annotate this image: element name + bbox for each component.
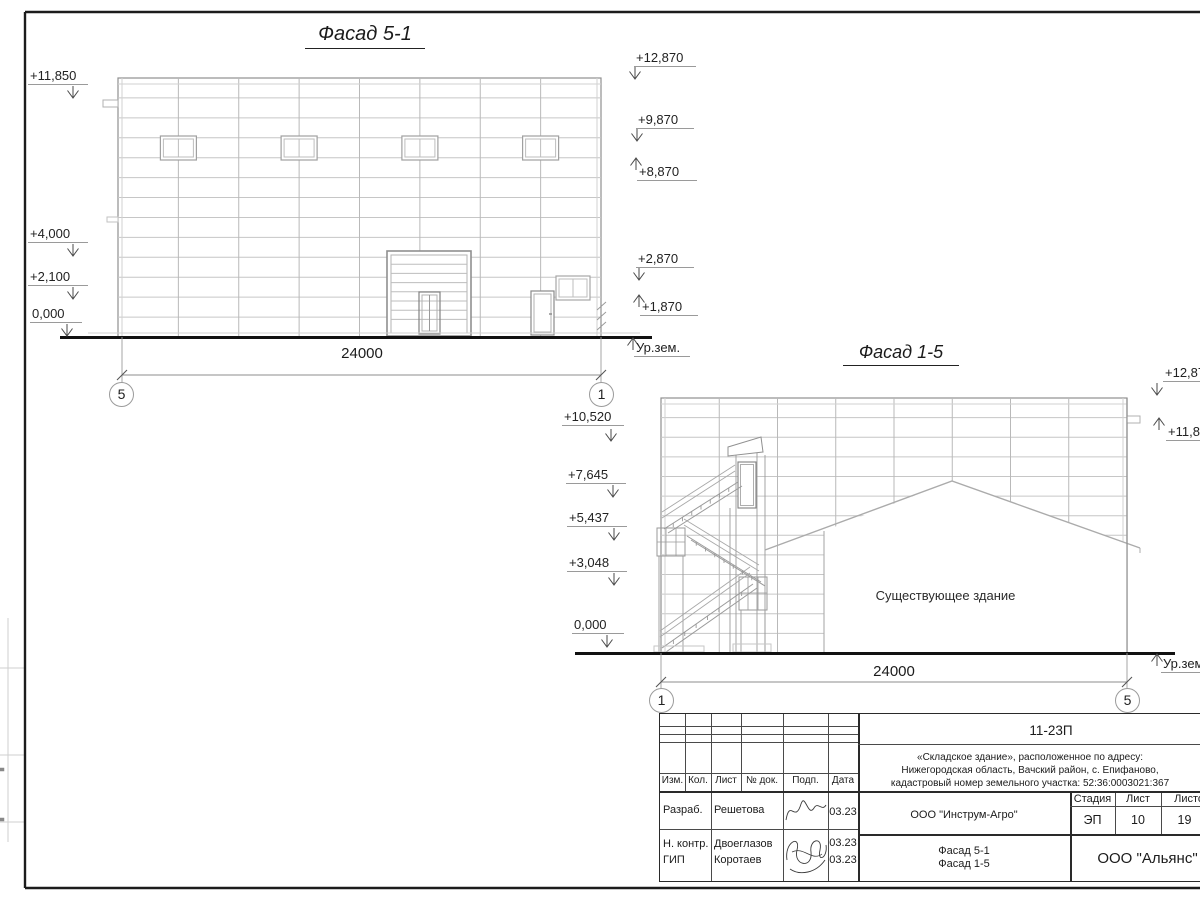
title-block: Изм. Кол. Лист № док. Подп. Дата Разраб.…: [659, 713, 1200, 882]
elevation-label: +4,000: [28, 226, 88, 243]
elevation-arrow-icon: [68, 287, 79, 299]
project-description-line: кадастровый номер земельного участка: 52…: [860, 778, 1200, 789]
ground-level-label: Ур.зем.: [1161, 656, 1200, 673]
elevation-arrow-icon: [1152, 383, 1163, 395]
project-description-line: Нижегородская область, Вачский район, с.…: [860, 765, 1200, 776]
axis-bubble: 1: [589, 382, 614, 407]
elevation-arrow-icon: [630, 67, 641, 79]
doc-code: 11-23П: [858, 723, 1200, 738]
axis-bubble: 1: [649, 688, 674, 713]
dimension-label: 24000: [330, 345, 394, 362]
elevation-arrow-icon: [609, 528, 620, 540]
rev-col-data: Дата: [828, 775, 858, 786]
stage-value: ЭП: [1070, 813, 1115, 827]
elevation-label: +2,870: [636, 251, 694, 268]
elevation-arrow-icon: [1154, 418, 1165, 430]
contractor-company: ООО "Альянс": [1070, 850, 1200, 867]
elevation-label: +1,870: [640, 299, 698, 316]
dimension-label: 24000: [862, 663, 926, 680]
elevation-label: 0,000: [572, 617, 624, 634]
rev-col-kol: Кол.: [685, 775, 711, 786]
signer-date: 03.23: [828, 837, 858, 849]
elevation-label: +2,100: [28, 269, 88, 286]
elevation-arrow-icon: [608, 485, 619, 497]
elevation-label: +5,437: [567, 510, 627, 527]
signer-name: Решетова: [714, 804, 764, 816]
elevation-label: +12,870: [1163, 365, 1200, 382]
facade-5-1-title: Фасад 5-1: [305, 23, 425, 49]
project-description-line: «Складское здание», расположенное по адр…: [860, 752, 1200, 763]
sheets-total: 19: [1161, 813, 1200, 827]
elevation-arrow-icon: [606, 429, 617, 441]
sheet-content-line: Фасад 5-1: [858, 845, 1070, 857]
ground-level-label: Ур.зем.: [634, 340, 690, 357]
rev-col-podp: Подп.: [783, 775, 828, 786]
sheet-header: Лист: [1115, 793, 1161, 805]
client-company: ООО "Инструм-Агро": [858, 809, 1070, 821]
elevation-arrow-icon: [632, 129, 643, 141]
signer-date: 03.23: [828, 806, 858, 818]
elevation-arrow-icon: [609, 573, 620, 585]
existing-building-label: Существующее здание: [858, 588, 1033, 603]
elevation-label: 0,000: [30, 306, 82, 323]
elevation-label: +12,870: [634, 50, 696, 67]
axis-bubble: 5: [109, 382, 134, 407]
facade-1-5-title: Фасад 1-5: [843, 342, 959, 366]
elevation-arrow-icon: [68, 244, 79, 256]
rev-col-ndok: № док.: [741, 775, 783, 786]
signer-name: Коротаев: [714, 854, 762, 866]
elevation-label: +11,850: [28, 68, 88, 85]
elevation-label: +8,870: [637, 164, 697, 181]
axis-bubble: 5: [1115, 688, 1140, 713]
elevation-arrow-icon: [634, 268, 645, 280]
signer-role: Разраб.: [663, 804, 703, 816]
stage-header: Стадия: [1070, 793, 1115, 805]
signer-role: ГИП: [663, 854, 685, 866]
elevation-label: +10,520: [562, 409, 624, 426]
signer-name: Двоеглазов: [714, 838, 772, 850]
signer-role: Н. контр.: [663, 838, 708, 850]
sheet-content-line: Фасад 1-5: [858, 858, 1070, 870]
elevation-label: +11,850: [1166, 424, 1200, 441]
sheets-header: Листов: [1161, 793, 1200, 805]
elevation-label: +3,048: [567, 555, 627, 572]
elevation-arrow-icon: [68, 86, 79, 98]
drawing-sheet: Фасад 5-1 Фасад 1-5 +11,850 +4,000 +2,10…: [0, 0, 1200, 900]
signer-date: 03.23: [828, 854, 858, 866]
rev-col-izm: Изм.: [660, 775, 685, 786]
signature-scribbles: [782, 790, 828, 880]
sheet-number: 10: [1115, 813, 1161, 827]
elevation-label: +9,870: [636, 112, 694, 129]
rev-col-list: Лист: [711, 775, 741, 786]
elevation-arrow-icon: [62, 324, 73, 336]
elevation-label: +7,645: [566, 467, 626, 484]
elevation-arrow-icon: [602, 635, 613, 647]
